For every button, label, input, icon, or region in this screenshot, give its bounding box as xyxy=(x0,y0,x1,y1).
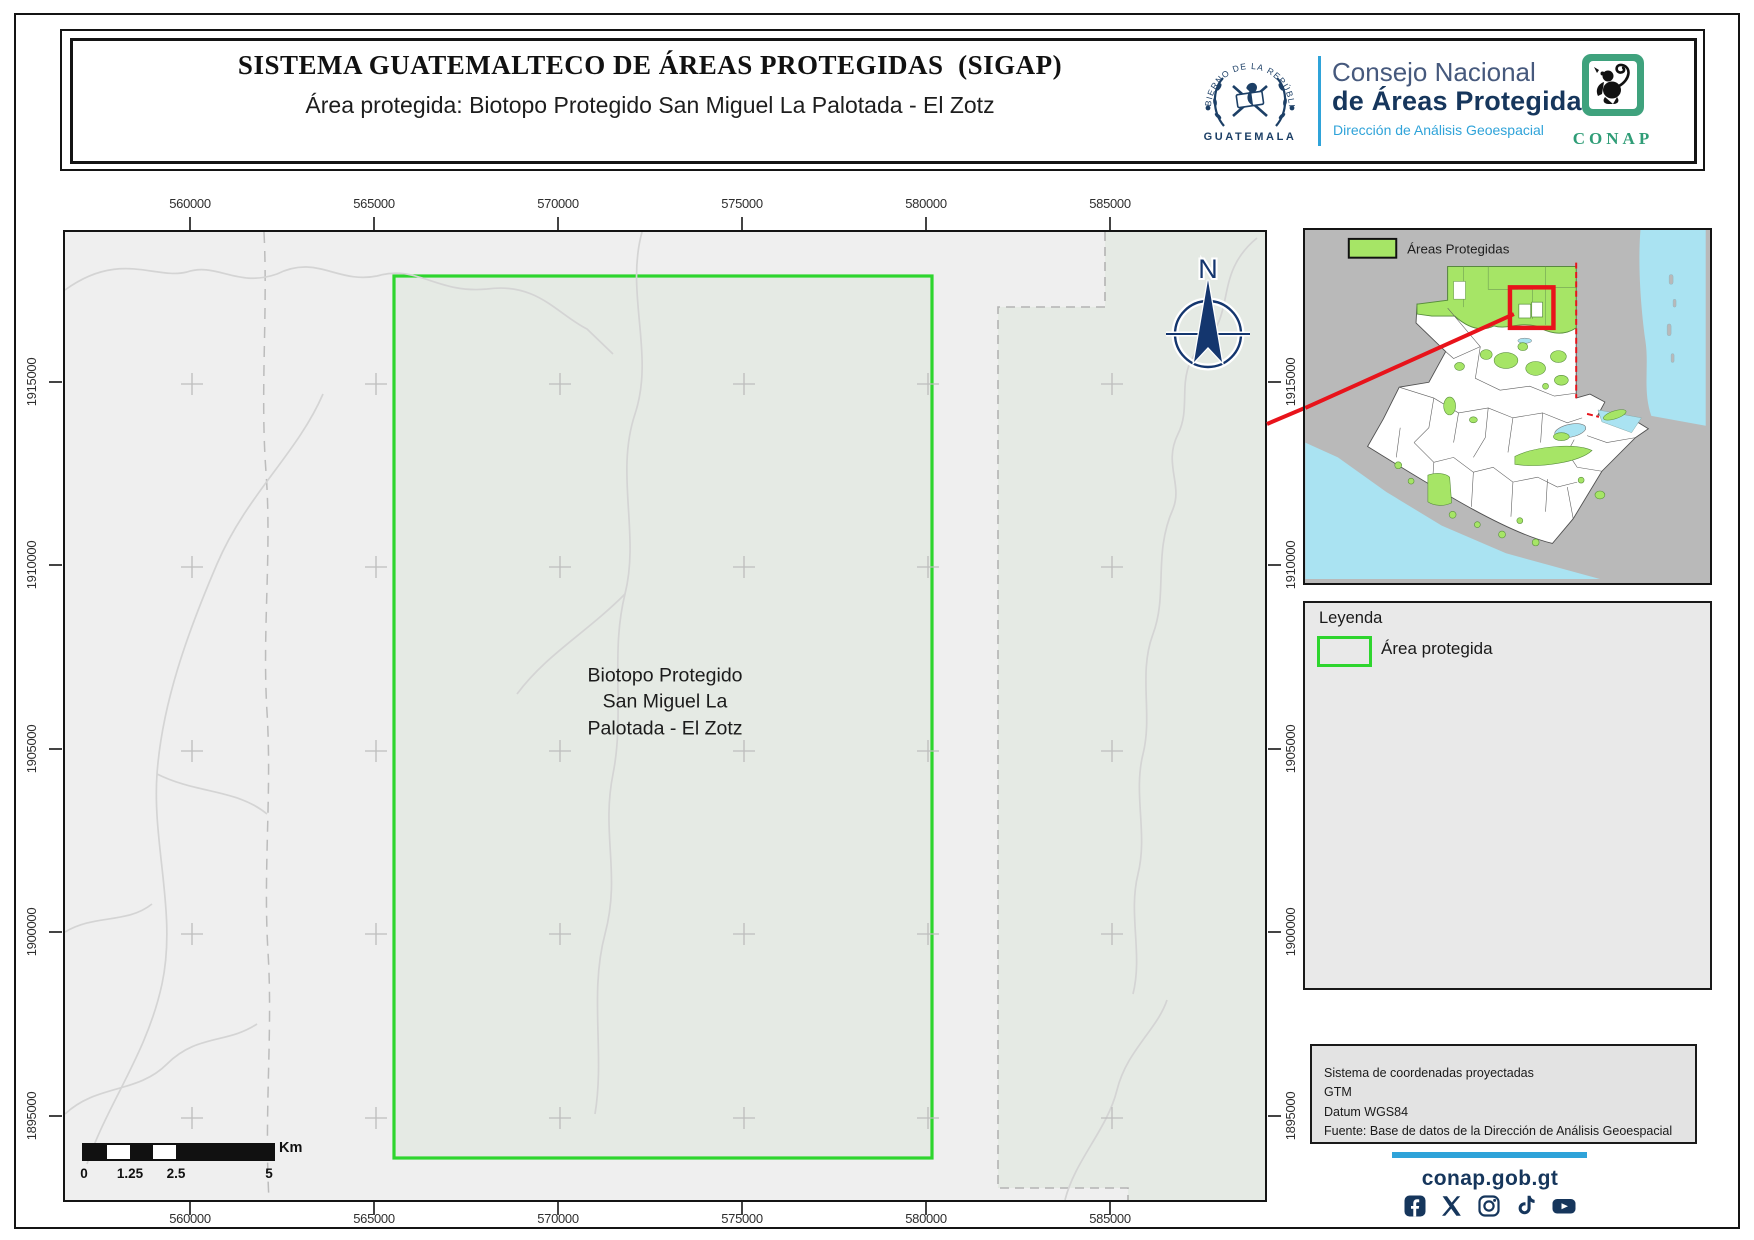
org-name-line2: de Áreas Protegidas xyxy=(1332,86,1597,117)
y-axis-label: 1895000 xyxy=(1283,1076,1299,1156)
tiktok-icon xyxy=(1514,1194,1538,1218)
x-axis-label: 560000 xyxy=(150,1211,230,1226)
y-axis-label: 1895000 xyxy=(24,1076,40,1156)
youtube-icon xyxy=(1551,1194,1577,1218)
scale-bar xyxy=(82,1143,275,1161)
compass-rose: N xyxy=(1158,242,1258,407)
conap-logo: CONAP xyxy=(1568,52,1658,149)
emblem-left-dot xyxy=(1206,106,1211,111)
scale-label-0: 0 xyxy=(64,1166,104,1181)
map-report-page: SISTEMA GUATEMALTECO DE ÁREAS PROTEGIDAS… xyxy=(0,0,1754,1240)
x-axis-label: 565000 xyxy=(334,196,414,211)
legend-panel: Leyenda Área protegida xyxy=(1303,601,1712,990)
x-axis-label: 585000 xyxy=(1070,196,1150,211)
y-axis-label: 1910000 xyxy=(24,525,40,605)
x-icon xyxy=(1440,1194,1464,1218)
compass-north-label: N xyxy=(1198,254,1218,284)
conap-logo-text: CONAP xyxy=(1568,129,1658,149)
scale-unit: Km xyxy=(279,1140,302,1156)
org-direction-line: Dirección de Análisis Geoespacial xyxy=(1333,122,1544,138)
x-axis-label: 570000 xyxy=(518,196,598,211)
coordinate-info-panel: Sistema de coordenadas proyectadas GTM D… xyxy=(1310,1044,1697,1144)
y-axis-label: 1905000 xyxy=(1283,709,1299,789)
scale-label-2: 2.5 xyxy=(156,1166,196,1181)
conap-monkey-badge xyxy=(1568,52,1658,124)
x-axis-label: 570000 xyxy=(518,1211,598,1226)
protected-area-label: Biotopo Protegido San Miguel La Palotada… xyxy=(525,663,805,742)
legend-item-label: Área protegida xyxy=(1381,639,1493,659)
y-axis-label: 1905000 xyxy=(24,709,40,789)
x-axis-label: 580000 xyxy=(886,196,966,211)
y-axis-label: 1900000 xyxy=(1283,892,1299,972)
legend-area-swatch xyxy=(1317,636,1372,667)
logo-divider xyxy=(1318,56,1321,146)
scale-seg xyxy=(130,1145,153,1159)
page-subtitle: Área protegida: Biotopo Protegido San Mi… xyxy=(90,92,1210,119)
inset-locator-map: Áreas Protegidas xyxy=(1303,228,1712,585)
scale-seg xyxy=(153,1145,176,1159)
inset-legend-swatch xyxy=(1349,239,1396,258)
x-axis-label: 585000 xyxy=(1070,1211,1150,1226)
x-axis-label: 575000 xyxy=(702,1211,782,1226)
website-url: conap.gob.gt xyxy=(1380,1167,1600,1191)
info-line: Sistema de coordenadas proyectadas xyxy=(1324,1064,1695,1083)
government-emblem-icon: GOBIERNO DE LA REPÚBLICA GUATEMALA xyxy=(1198,48,1302,152)
admin-boundary-line xyxy=(264,232,270,1200)
info-line: GTM xyxy=(1324,1083,1695,1102)
guatemala-inset-canvas: Áreas Protegidas xyxy=(1305,230,1706,579)
main-map: Biotopo Protegido San Miguel La Palotada… xyxy=(63,230,1267,1202)
y-axis-label: 1915000 xyxy=(24,342,40,422)
page-title: SISTEMA GUATEMALTECO DE ÁREAS PROTEGIDAS… xyxy=(90,50,1210,81)
scale-seg xyxy=(176,1145,273,1159)
lake-peten-itza xyxy=(1518,338,1532,343)
x-axis-label: 565000 xyxy=(334,1211,414,1226)
y-axis-label: 1910000 xyxy=(1283,525,1299,605)
y-axis-label: 1900000 xyxy=(24,892,40,972)
legend-title: Leyenda xyxy=(1319,609,1382,628)
emblem-bottom-text: GUATEMALA xyxy=(1204,131,1297,143)
scale-label-3: 5 xyxy=(249,1166,289,1181)
x-axis-label: 575000 xyxy=(702,196,782,211)
footer-accent-bar xyxy=(1392,1152,1587,1158)
info-line: Fuente: Base de datos de la Dirección de… xyxy=(1324,1122,1695,1141)
compass-needle xyxy=(1194,280,1222,362)
instagram-icon xyxy=(1477,1194,1501,1218)
info-line: Datum WGS84 xyxy=(1324,1103,1695,1122)
scale-seg xyxy=(84,1145,107,1159)
scale-label-1: 1.25 xyxy=(110,1166,150,1181)
inset-legend-label: Áreas Protegidas xyxy=(1407,242,1510,257)
x-axis-label: 580000 xyxy=(886,1211,966,1226)
emblem-right-dot xyxy=(1290,106,1295,111)
scale-seg xyxy=(107,1145,130,1159)
org-name-line1: Consejo Nacional xyxy=(1332,57,1536,88)
x-axis-label: 560000 xyxy=(150,196,230,211)
social-icons-row xyxy=(1380,1194,1600,1218)
facebook-icon xyxy=(1403,1194,1427,1218)
